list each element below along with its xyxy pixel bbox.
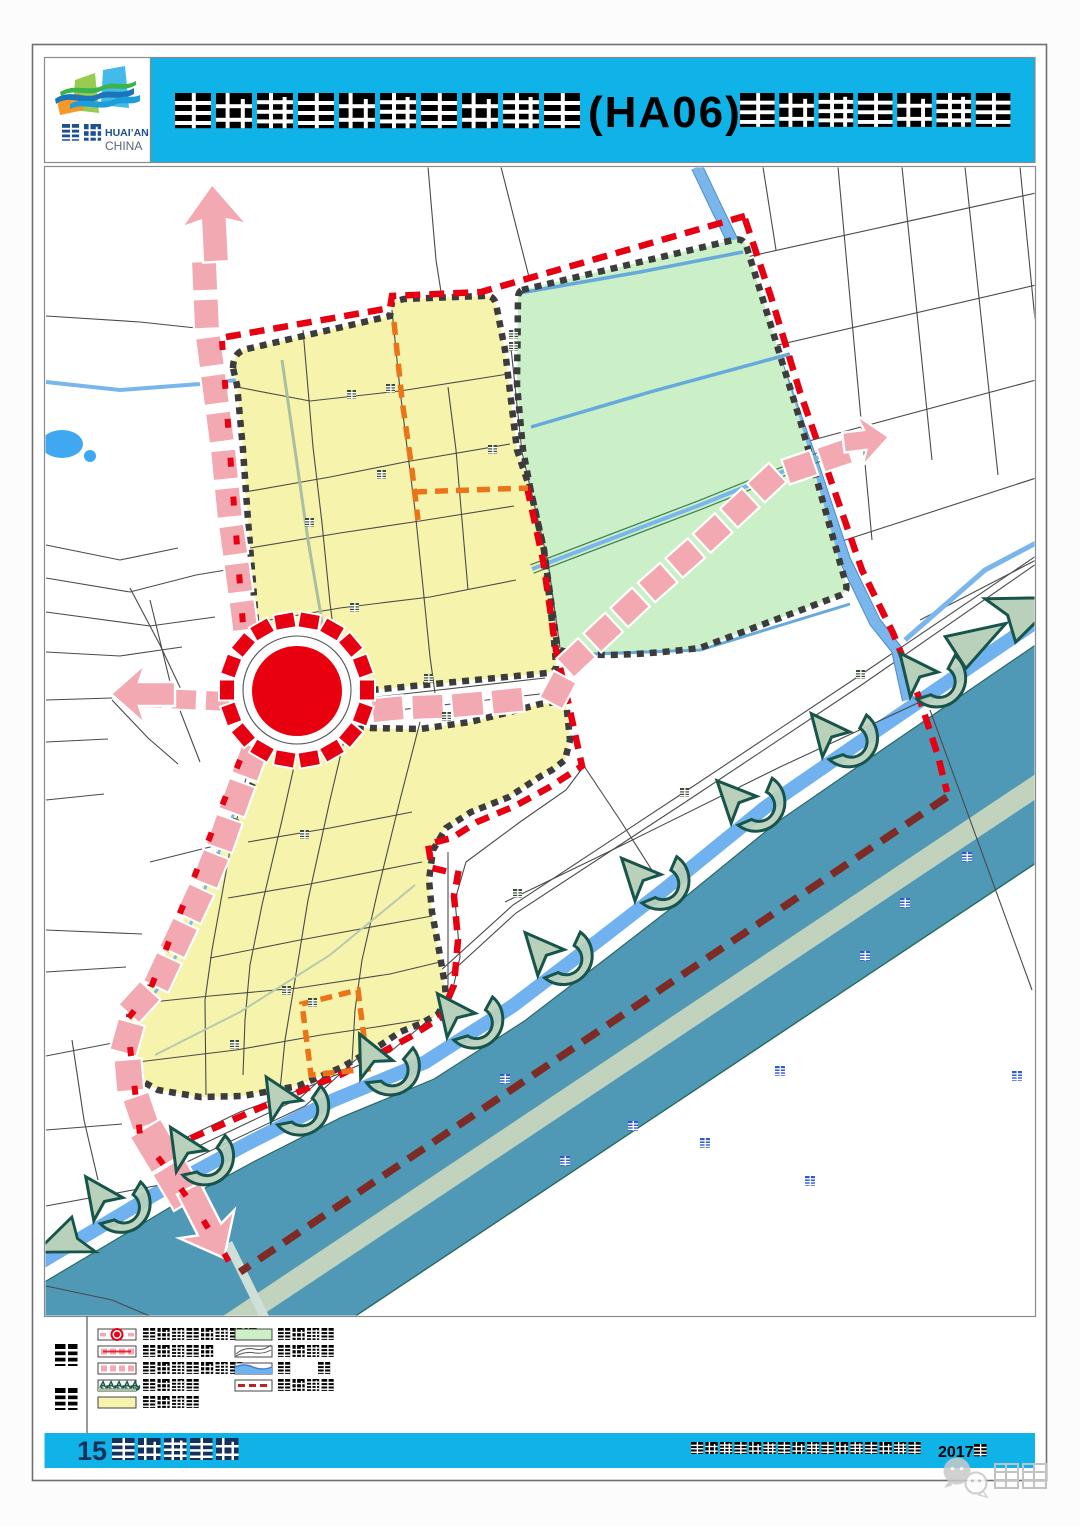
svg-text:HUAI’AN: HUAI’AN — [105, 127, 149, 139]
svg-text:(HA06): (HA06) — [588, 88, 742, 137]
svg-text:15: 15 — [77, 1436, 107, 1466]
svg-text:CHINA: CHINA — [105, 139, 142, 153]
